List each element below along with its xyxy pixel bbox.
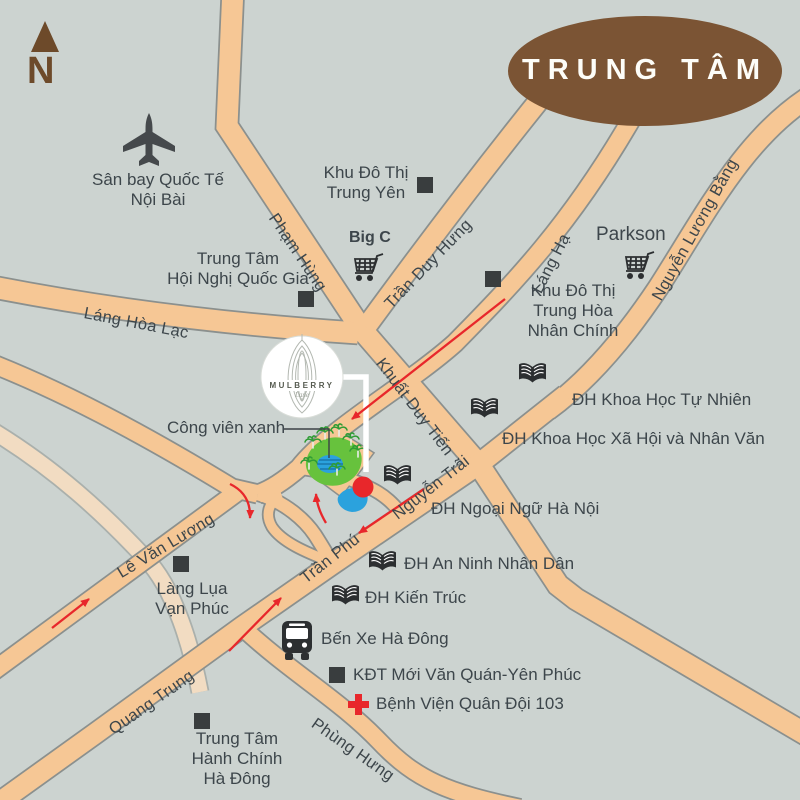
- book-icon-foreign-language: [383, 464, 412, 489]
- location-map: N: [0, 0, 800, 800]
- parkson-cart-icon: [620, 249, 656, 283]
- silk-village-label: Làng Lụa Vạn Phúc: [146, 579, 238, 619]
- marker-square-new-urban: [329, 667, 345, 683]
- north-arrow-icon: [31, 21, 59, 53]
- compass-n-label: N: [27, 50, 54, 93]
- center-badge-label: TRUNG TÂM: [508, 54, 782, 87]
- marker-square-convention: [298, 291, 314, 307]
- book-icon-social-science: [470, 397, 499, 422]
- bus-station-label: Bến Xe Hà Đông: [321, 629, 449, 649]
- book-icon-natural-science: [518, 362, 547, 387]
- marker-square-trung-yen: [417, 177, 433, 193]
- site-marker-dot: [353, 477, 374, 498]
- bigc-cart-icon: [349, 251, 385, 285]
- airplane-icon: [120, 110, 178, 168]
- new-urban-label: KĐT Mới Văn Quán-Yên Phúc: [353, 665, 581, 685]
- hospital-cross-icon: [348, 694, 369, 715]
- uni-natural-science-label: ĐH Khoa Học Tự Nhiên: [572, 390, 751, 410]
- uni-architecture-label: ĐH Kiến Trúc: [365, 588, 466, 608]
- uni-foreign-language-label: ĐH Ngoại Ngữ Hà Nội: [431, 499, 599, 519]
- green-park-label: Công viên xanh: [167, 418, 285, 438]
- big-c-label: Big C: [349, 229, 391, 247]
- trung-yen-label: Khu Đô Thị Trung Yên: [318, 163, 414, 203]
- uni-security-label: ĐH An Ninh Nhân Dân: [404, 554, 574, 574]
- marker-square-silk-village: [173, 556, 189, 572]
- marker-square-trung-hoa: [485, 271, 501, 287]
- hospital-label: Bệnh Viện Quân Đội 103: [376, 694, 564, 714]
- marker-square-admin-center: [194, 713, 210, 729]
- mulberry-logo-subname: Lane: [262, 391, 342, 399]
- admin-center-label: Trung Tâm Hành Chính Hà Đông: [163, 729, 311, 789]
- book-icon-security: [368, 550, 397, 575]
- mulberry-logo-name: MULBERRY: [262, 381, 342, 390]
- mulberry-logo: [261, 334, 343, 418]
- airport-label: Sân bay Quốc Tế Nội Bài: [60, 170, 256, 210]
- parkson-label: Parkson: [596, 224, 666, 246]
- book-icon-architecture: [331, 584, 360, 609]
- bus-icon: [279, 619, 315, 661]
- uni-social-science-label: ĐH Khoa Học Xã Hội và Nhân Văn: [502, 429, 765, 449]
